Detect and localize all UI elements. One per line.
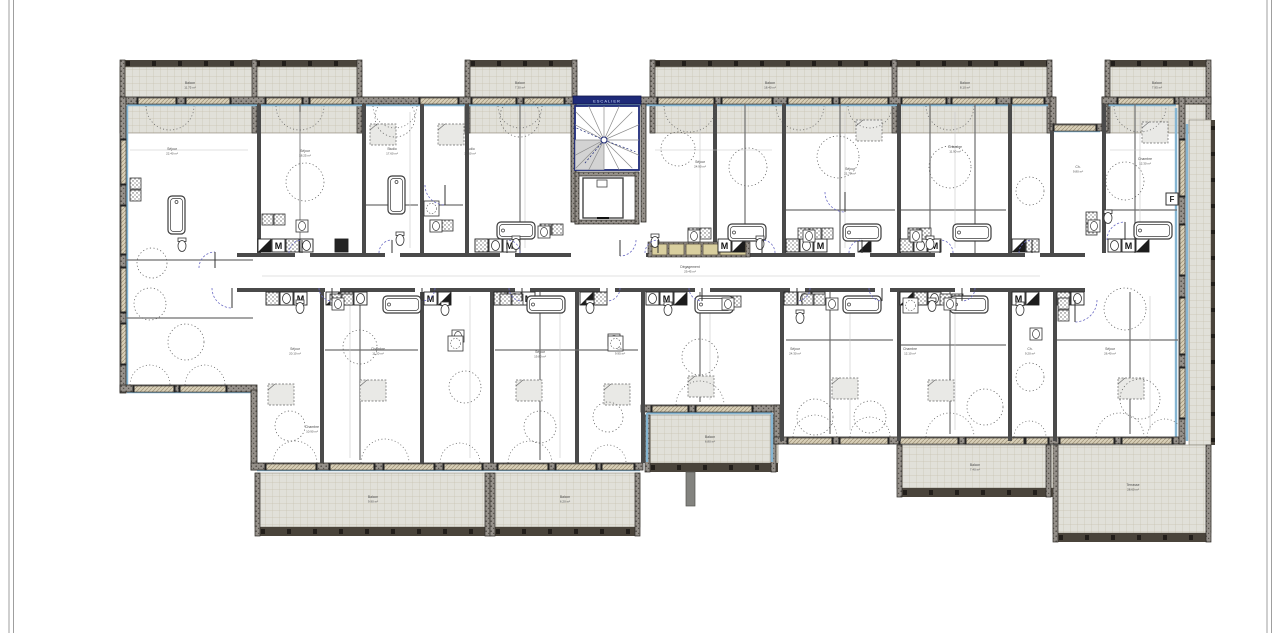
kitchen-unit-icon bbox=[130, 190, 141, 201]
room-label: Balcon bbox=[515, 81, 525, 85]
svg-text:M: M bbox=[1125, 241, 1133, 251]
corridor-wall bbox=[750, 253, 855, 257]
room-label: Séjour bbox=[300, 149, 311, 153]
room-label: Balcon bbox=[970, 463, 980, 467]
room-label: Terrasse bbox=[1126, 483, 1139, 487]
room-area-label: 24.90 m² bbox=[694, 165, 706, 169]
room-label: Séjour bbox=[167, 147, 178, 151]
bed-icon bbox=[856, 120, 882, 141]
plan-sheet: MMMMMMMMMMMMBalcon11.75 m²Balcon7.30 m²B… bbox=[0, 0, 1280, 633]
kitchen-unit-icon bbox=[700, 228, 711, 239]
room-area-label: 24.30 m² bbox=[789, 352, 801, 356]
room-area-label: 7.95 m² bbox=[1152, 86, 1162, 90]
bed-icon bbox=[604, 384, 630, 405]
mailbox bbox=[669, 244, 684, 255]
room-label: Balcon bbox=[368, 495, 378, 499]
corridor-wall bbox=[950, 253, 1025, 257]
room-area-label: 26.40 m² bbox=[1104, 352, 1116, 356]
room-label: Séjour bbox=[845, 167, 856, 171]
room-area-label: 29.45 m² bbox=[684, 270, 696, 274]
room-label: Dégagement bbox=[680, 265, 699, 269]
elevator bbox=[575, 172, 639, 224]
room-label: Séjour bbox=[290, 347, 301, 351]
room-label: Séjour bbox=[790, 347, 801, 351]
room-area-label: 9.80 m² bbox=[1073, 170, 1083, 174]
svg-text:M: M bbox=[275, 241, 283, 251]
bed-icon bbox=[1142, 122, 1168, 143]
room-label: Balcon bbox=[765, 81, 775, 85]
kitchen-unit-icon bbox=[442, 220, 453, 231]
room-label: Studio bbox=[387, 147, 397, 151]
fixtures bbox=[130, 120, 1172, 405]
stair-badge-label: ESCALIER bbox=[593, 99, 621, 104]
room-area-label: 7.40 m² bbox=[970, 468, 980, 472]
room-area-label: 9.20 m² bbox=[1025, 352, 1035, 356]
room-area-label: 9.95 m² bbox=[615, 352, 625, 356]
corridor-wall bbox=[237, 253, 295, 257]
bed-icon bbox=[360, 380, 386, 401]
corridor-wall bbox=[237, 288, 325, 292]
room-area-label: 9.90 m² bbox=[368, 500, 378, 504]
corridor-wall bbox=[430, 288, 515, 292]
bed-icon bbox=[1118, 378, 1144, 399]
room-area-label: 12.10 m² bbox=[904, 352, 916, 356]
bed-icon bbox=[268, 384, 294, 405]
room-area-label: 12.30 m² bbox=[1139, 162, 1151, 166]
corridor-wall bbox=[970, 288, 1085, 292]
room-label: Studio bbox=[465, 147, 475, 151]
corridor-wall bbox=[515, 253, 571, 257]
room-area-label: 28.60 m² bbox=[1127, 488, 1139, 492]
corridor-wall bbox=[615, 288, 695, 292]
windows bbox=[121, 98, 1186, 471]
corridor-wall bbox=[805, 288, 875, 292]
room-label: Ch. bbox=[1027, 347, 1032, 351]
room-label: Séjour bbox=[535, 350, 546, 354]
corridor-wall bbox=[400, 253, 500, 257]
room-label: Chambre bbox=[903, 347, 917, 351]
room-area-label: 8.10 m² bbox=[960, 86, 970, 90]
kitchen-unit-icon bbox=[130, 178, 141, 189]
room-label: Balcon bbox=[1152, 81, 1162, 85]
spiral-staircase bbox=[573, 96, 641, 170]
room-label: Balcon bbox=[960, 81, 970, 85]
kitchen-unit-icon bbox=[814, 294, 825, 305]
mailbox bbox=[703, 244, 718, 255]
kitchen-unit-icon bbox=[274, 214, 285, 225]
room-label: Ch. bbox=[1075, 165, 1080, 169]
bed-icon bbox=[928, 380, 954, 401]
room-area-label: 11.75 m² bbox=[184, 86, 196, 90]
room-area-label: 21.75 m² bbox=[844, 172, 856, 176]
room-label: Séjour bbox=[695, 160, 706, 164]
room-label: Chambre bbox=[948, 145, 962, 149]
room-area-label: 7.30 m² bbox=[515, 86, 525, 90]
room-label: Balcon bbox=[185, 81, 195, 85]
corridor-wall bbox=[1040, 253, 1085, 257]
corridor-wall bbox=[310, 253, 385, 257]
room-area-label: 11.20 m² bbox=[372, 352, 384, 356]
room-label: Chambre bbox=[305, 425, 319, 429]
corridor-wall bbox=[340, 288, 415, 292]
bed-icon bbox=[688, 376, 714, 397]
corridor-wall bbox=[530, 288, 600, 292]
kitchen-unit-icon bbox=[822, 228, 833, 239]
fridge-label: F bbox=[1170, 195, 1175, 204]
room-area-label: 6.20 m² bbox=[560, 500, 570, 504]
corridor-wall bbox=[870, 253, 935, 257]
bed-icon bbox=[438, 124, 464, 145]
floor-plan-drawing: MMMMMMMMMMMMBalcon11.75 m²Balcon7.30 m²B… bbox=[0, 0, 1280, 633]
kitchen-unit-icon bbox=[500, 294, 511, 305]
kitchen-unit-icon bbox=[262, 214, 273, 225]
room-area-label: 19.80 m² bbox=[534, 355, 546, 359]
bed-icon bbox=[832, 378, 858, 399]
svg-text:M: M bbox=[721, 241, 729, 251]
room-area-label: 18.25 m² bbox=[299, 154, 311, 158]
kitchen-unit-icon bbox=[512, 294, 523, 305]
room-label: Séjour bbox=[1105, 347, 1116, 351]
mailbox bbox=[686, 244, 701, 255]
room-label: Chambre bbox=[371, 347, 385, 351]
corridor-wall bbox=[890, 288, 955, 292]
svg-text:M: M bbox=[817, 241, 825, 251]
scene-root: MMMMMMMMMMMMBalcon11.75 m²Balcon7.30 m²B… bbox=[9, 0, 1272, 633]
kitchen-unit-icon bbox=[552, 224, 563, 235]
room-label: Balcon bbox=[705, 435, 715, 439]
room-area-label: 17.60 m² bbox=[464, 152, 476, 156]
corridor-wall bbox=[710, 288, 790, 292]
room-area-label: 17.60 m² bbox=[386, 152, 398, 156]
bed-icon bbox=[516, 380, 542, 401]
room-area-label: 10.90 m² bbox=[306, 430, 318, 434]
room-label: Balcon bbox=[560, 495, 570, 499]
bed-icon bbox=[370, 124, 396, 145]
room-label: Chambre bbox=[1138, 157, 1152, 161]
room-area-label: 11.90 m² bbox=[949, 150, 961, 154]
kitchen-unit-icon bbox=[1058, 310, 1069, 321]
room-area-label: 20.10 m² bbox=[289, 352, 301, 356]
room-area-label: 22.40 m² bbox=[166, 152, 178, 156]
support-pole bbox=[686, 472, 695, 506]
room-label: Ch. bbox=[617, 347, 622, 351]
room-area-label: 18.40 m² bbox=[764, 86, 776, 90]
kitchen-unit-icon bbox=[1058, 298, 1069, 309]
room-area-label: 6.80 m² bbox=[705, 440, 715, 444]
svg-text:M: M bbox=[427, 294, 435, 304]
